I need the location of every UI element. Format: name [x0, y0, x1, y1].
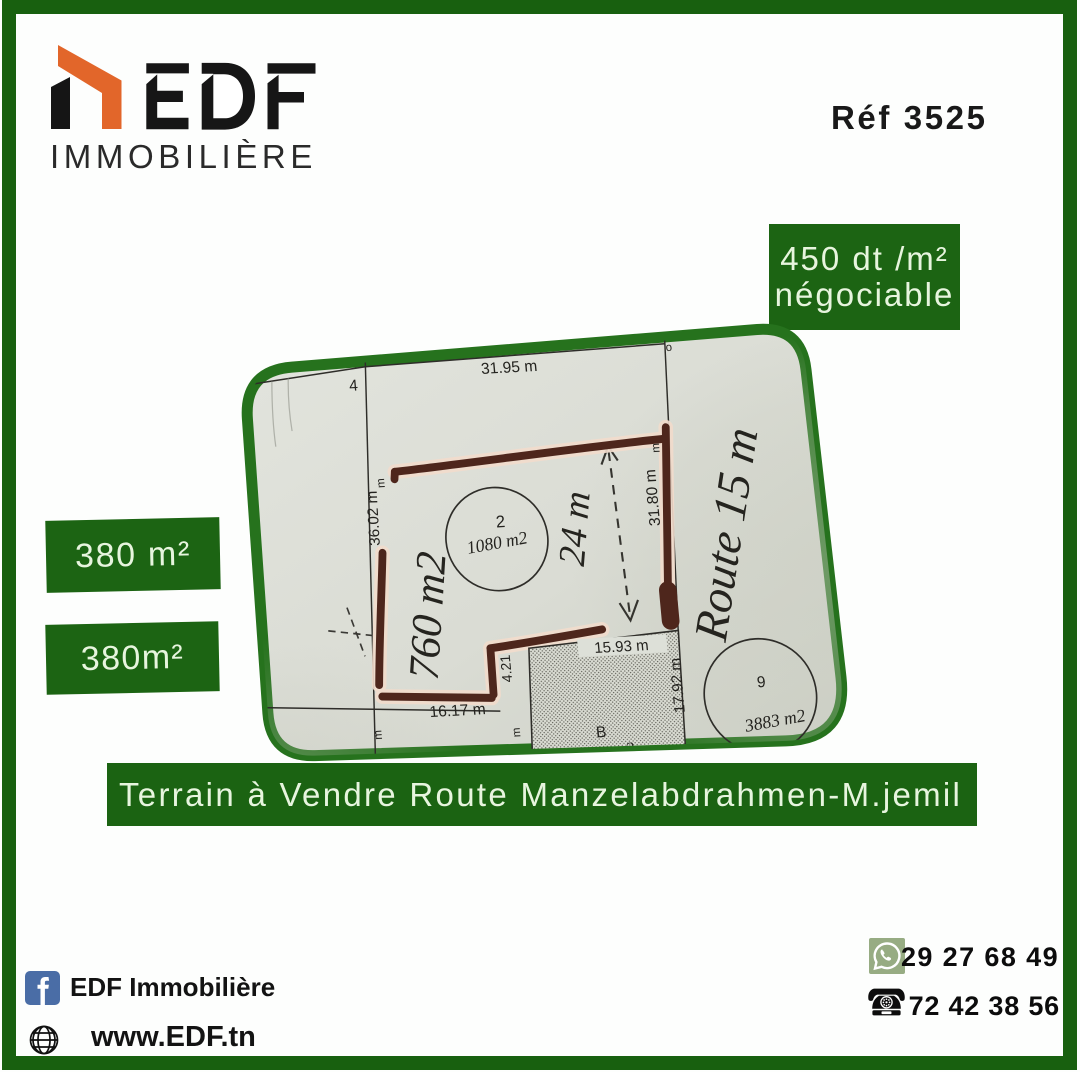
svg-text:9: 9 [756, 674, 766, 692]
svg-text:760 m2: 760 m2 [401, 550, 456, 682]
svg-text:m: m [511, 727, 524, 737]
svg-text:4.21: 4.21 [497, 654, 515, 683]
svg-text:2: 2 [495, 512, 506, 532]
svg-text:o: o [665, 342, 672, 354]
svg-text:24 m: 24 m [551, 489, 599, 568]
svg-text:m: m [375, 478, 388, 488]
svg-text:36.02 m: 36.02 m [364, 491, 384, 546]
svg-text:15.93 m: 15.93 m [594, 637, 650, 657]
svg-text:m: m [650, 443, 663, 453]
svg-text:16.17 m: 16.17 m [429, 701, 487, 721]
svg-text:m: m [372, 730, 385, 740]
svg-text:B: B [595, 724, 607, 742]
svg-text:31.95 m: 31.95 m [480, 358, 538, 378]
svg-text:4: 4 [348, 377, 358, 395]
